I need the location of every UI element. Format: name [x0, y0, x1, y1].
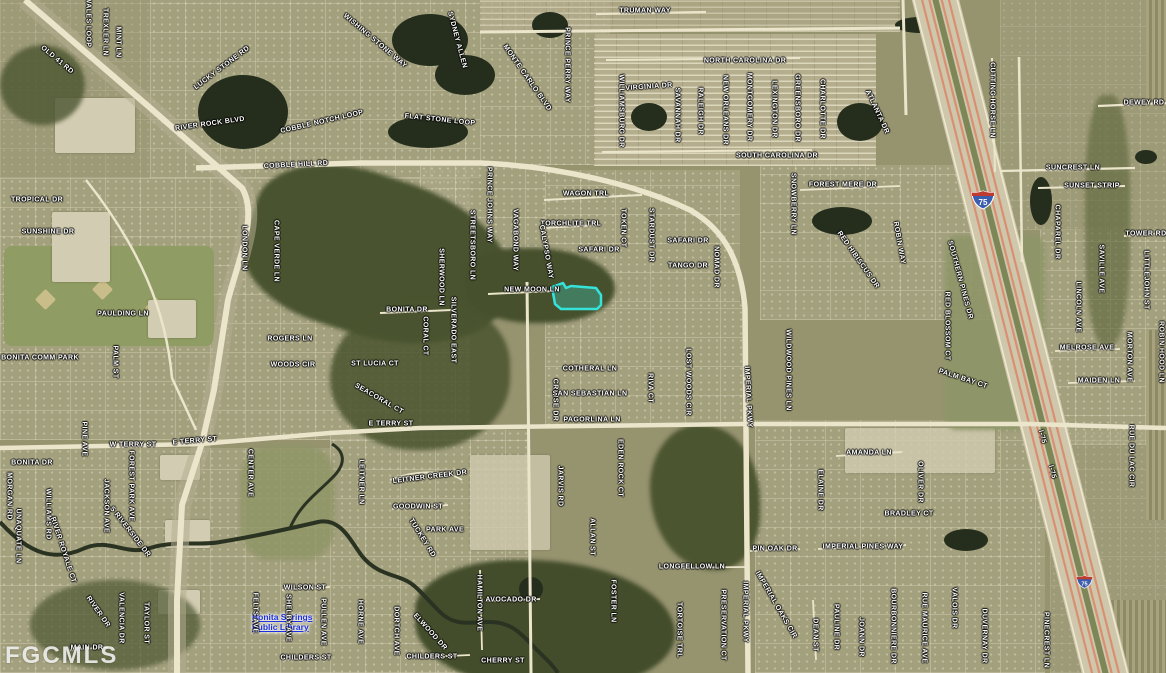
road-imperial-pkwy — [196, 163, 748, 673]
parcel-highlight[interactable] — [552, 283, 601, 309]
road-terry-st — [0, 424, 1166, 448]
mls-watermark: FGCMLS — [5, 642, 118, 670]
interstate-75-shield-icon: 75 — [1076, 575, 1093, 589]
creek-branch — [290, 444, 342, 528]
svg-text:75: 75 — [1081, 582, 1087, 588]
svg-text:75: 75 — [979, 198, 988, 207]
roads — [0, 0, 1166, 673]
library-poi-label: Bonita Springs Public Library — [252, 613, 362, 632]
interstate-75-shield-icon: 75 — [971, 190, 995, 210]
satellite-map-canvas[interactable]: 75 75 Bonita Springs Public Library OLD … — [0, 0, 1166, 673]
map-geometry-layer — [0, 0, 1166, 673]
library-poi-line2: Public Library — [252, 623, 362, 633]
